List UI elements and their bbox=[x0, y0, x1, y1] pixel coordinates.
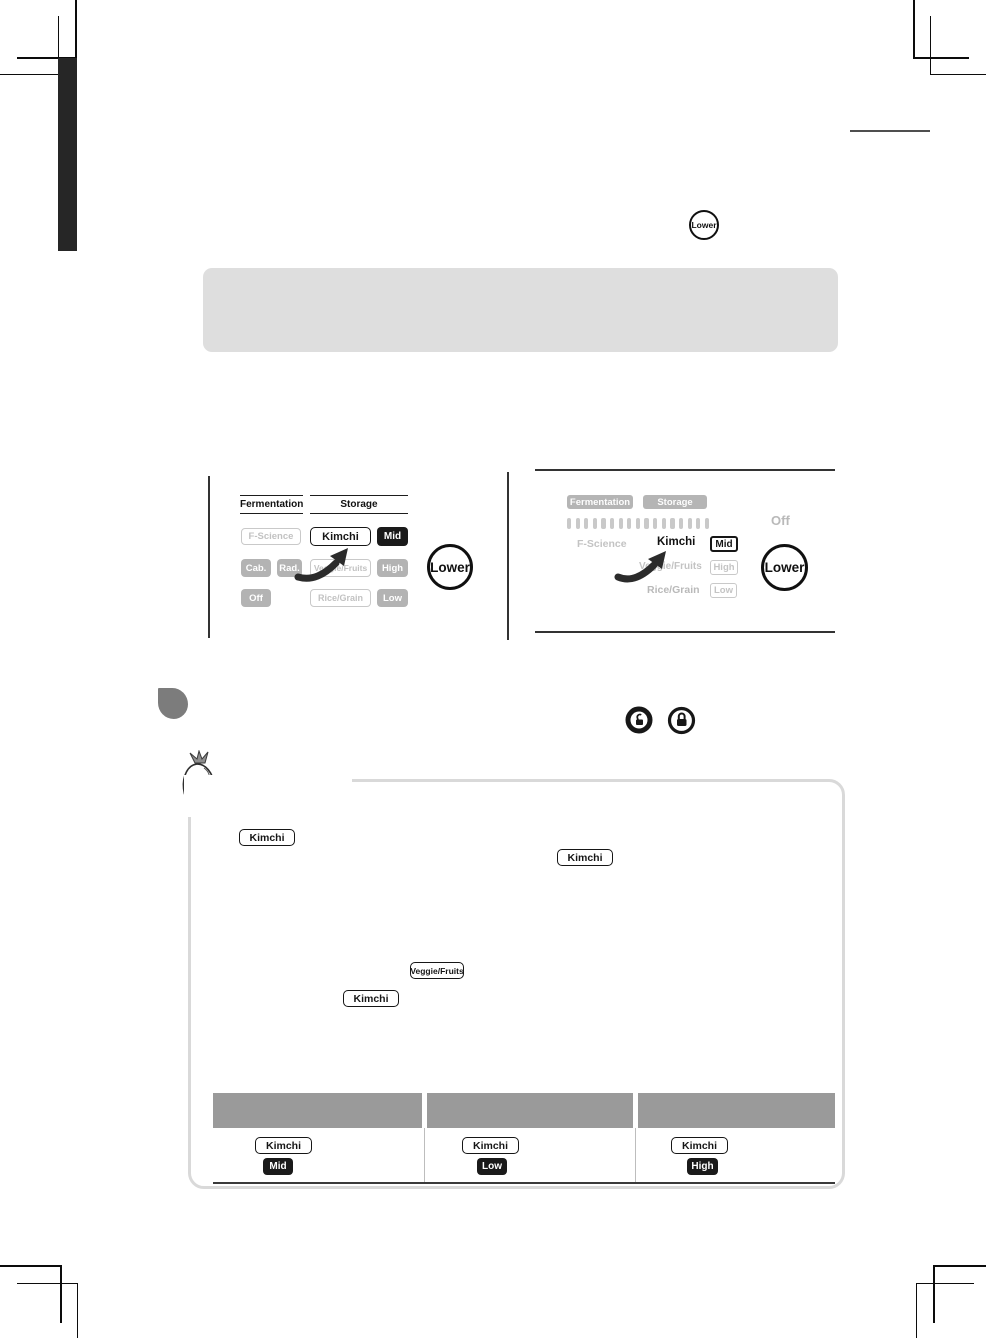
table-header-cell bbox=[638, 1093, 835, 1128]
crop-mark bbox=[916, 1283, 974, 1284]
low-button: Low bbox=[377, 589, 408, 607]
segment-tick bbox=[619, 518, 623, 529]
chapter-thumb-tab bbox=[58, 58, 77, 251]
arrow-to-kimchi-icon bbox=[290, 540, 360, 585]
section-bullet bbox=[158, 688, 188, 719]
crop-mark bbox=[17, 1283, 78, 1284]
kimchi-button: Kimchi bbox=[343, 990, 399, 1007]
manual-page: Lower Fermentation Storage F-Science Kim… bbox=[0, 0, 986, 1338]
segment-tick bbox=[662, 518, 666, 529]
crop-mark bbox=[933, 1265, 935, 1323]
segment-tick bbox=[601, 518, 605, 529]
segment-tick bbox=[567, 518, 571, 529]
off-label: Off bbox=[771, 513, 790, 528]
veggie-fruits-button: Veggie/Fruits bbox=[410, 962, 464, 979]
kimchi-button: Kimchi bbox=[255, 1137, 312, 1154]
segment-tick bbox=[610, 518, 614, 529]
mid-level-button: Mid bbox=[263, 1158, 293, 1175]
kimchi-button: Kimchi bbox=[671, 1137, 728, 1154]
table-header-cell bbox=[427, 1093, 633, 1128]
high-indicator: High bbox=[710, 560, 738, 575]
segment-tick bbox=[584, 518, 588, 529]
note-box bbox=[203, 268, 838, 352]
crop-mark bbox=[933, 1265, 986, 1267]
fermentation-mode-label: Fermentation bbox=[567, 495, 633, 509]
segment-tick bbox=[593, 518, 597, 529]
low-indicator: Low bbox=[710, 583, 737, 598]
header-rule bbox=[850, 130, 930, 132]
mid-button: Mid bbox=[377, 527, 408, 546]
crop-mark bbox=[913, 0, 915, 58]
figure-divider bbox=[208, 476, 210, 638]
table-column-divider bbox=[635, 1128, 636, 1182]
segment-tick bbox=[636, 518, 640, 529]
mid-indicator: Mid bbox=[710, 536, 738, 552]
crop-mark bbox=[77, 1283, 78, 1338]
figure-rule bbox=[535, 631, 835, 633]
crop-mark bbox=[0, 74, 58, 75]
segment-tick bbox=[576, 518, 580, 529]
high-level-button: High bbox=[687, 1158, 718, 1175]
lower-button-right-panel: Lower bbox=[761, 544, 808, 591]
crop-mark bbox=[60, 1265, 62, 1323]
low-level-button: Low bbox=[477, 1158, 507, 1175]
crop-mark bbox=[913, 57, 969, 59]
kimchi-button: Kimchi bbox=[557, 849, 613, 866]
kimchi-button: Kimchi bbox=[462, 1137, 519, 1154]
segment-tick bbox=[688, 518, 692, 529]
segment-bar bbox=[567, 518, 709, 529]
cabbage-button: Cab. bbox=[241, 559, 271, 577]
unlock-icon bbox=[625, 706, 653, 734]
rice-grain-button: Rice/Grain bbox=[310, 589, 371, 607]
table-header-cell bbox=[213, 1093, 422, 1128]
segment-tick bbox=[644, 518, 648, 529]
high-button: High bbox=[377, 559, 408, 577]
segment-tick bbox=[627, 518, 631, 529]
off-button: Off bbox=[241, 589, 271, 607]
tip-box-gap bbox=[184, 775, 352, 817]
storage-mode-label: Storage bbox=[643, 495, 707, 509]
crop-mark bbox=[930, 16, 931, 75]
left-panel-fermentation-header: Fermentation bbox=[240, 495, 303, 514]
segment-tick bbox=[696, 518, 700, 529]
segment-tick bbox=[653, 518, 657, 529]
segment-tick bbox=[670, 518, 674, 529]
arrow-to-kimchi-icon bbox=[612, 545, 676, 587]
left-panel-storage-header: Storage bbox=[310, 495, 408, 514]
figure-rule bbox=[535, 469, 835, 471]
crop-mark bbox=[916, 1283, 917, 1338]
crop-mark bbox=[58, 16, 59, 58]
lower-button-small: Lower bbox=[689, 210, 719, 240]
lower-button-left-panel: Lower bbox=[427, 544, 473, 590]
segment-tick bbox=[705, 518, 709, 529]
crop-mark bbox=[75, 0, 77, 58]
table-column-divider bbox=[424, 1128, 425, 1182]
kimchi-button: Kimchi bbox=[239, 829, 295, 846]
table-bottom-rule bbox=[213, 1182, 835, 1184]
crop-mark bbox=[0, 1265, 60, 1267]
segment-tick bbox=[679, 518, 683, 529]
lock-icon bbox=[667, 706, 696, 735]
figure-divider bbox=[507, 472, 509, 640]
crop-mark bbox=[930, 74, 986, 75]
